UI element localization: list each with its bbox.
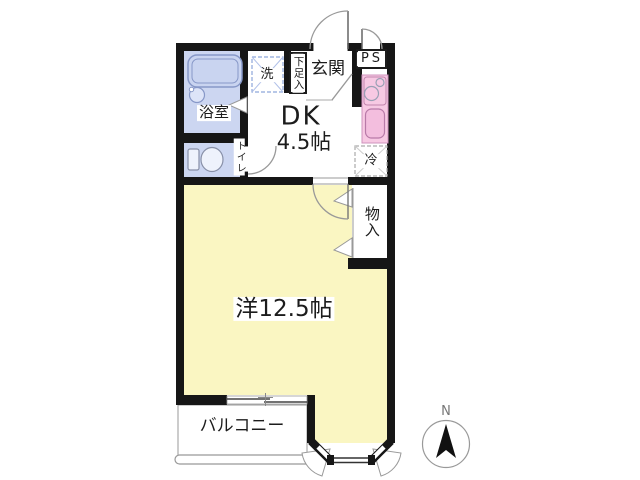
dk-size-label: 4.5帖 (275, 131, 333, 153)
pipe-space-label: PS (357, 52, 385, 66)
kitchen-counter (362, 75, 388, 143)
bathtub-icon (188, 55, 242, 87)
floorplan: 浴室 洗 下足入 玄関 PS DK 4.5帖 冷 トイレ 物入 洋12.5帖 バ… (0, 0, 640, 480)
refrigerator-label: 冷 (362, 154, 379, 168)
north-arrow-icon (436, 424, 456, 458)
toilet-icon (188, 148, 223, 172)
compass-icon (423, 421, 470, 468)
washbasin-icon (189, 87, 204, 102)
western-room-label: 洋12.5帖 (233, 297, 334, 321)
sink-icon (366, 109, 385, 138)
bathroom-label: 浴室 (197, 105, 231, 121)
toilet-label: トイレ (234, 139, 245, 176)
compass-north-label: N (439, 405, 453, 419)
stove-icon (364, 77, 386, 105)
laundry-label: 洗 (258, 68, 275, 82)
toilet-door-arc (248, 146, 276, 174)
balcony-label: バルコニー (198, 418, 287, 436)
dk-label: DK (278, 103, 323, 130)
balcony-railing (175, 455, 313, 464)
western-room-bay-floor (315, 395, 387, 443)
entrance-label: 玄関 (309, 61, 347, 79)
closet-label: 物入 (363, 204, 379, 240)
shoe-cabinet-label: 下足入 (292, 54, 303, 93)
